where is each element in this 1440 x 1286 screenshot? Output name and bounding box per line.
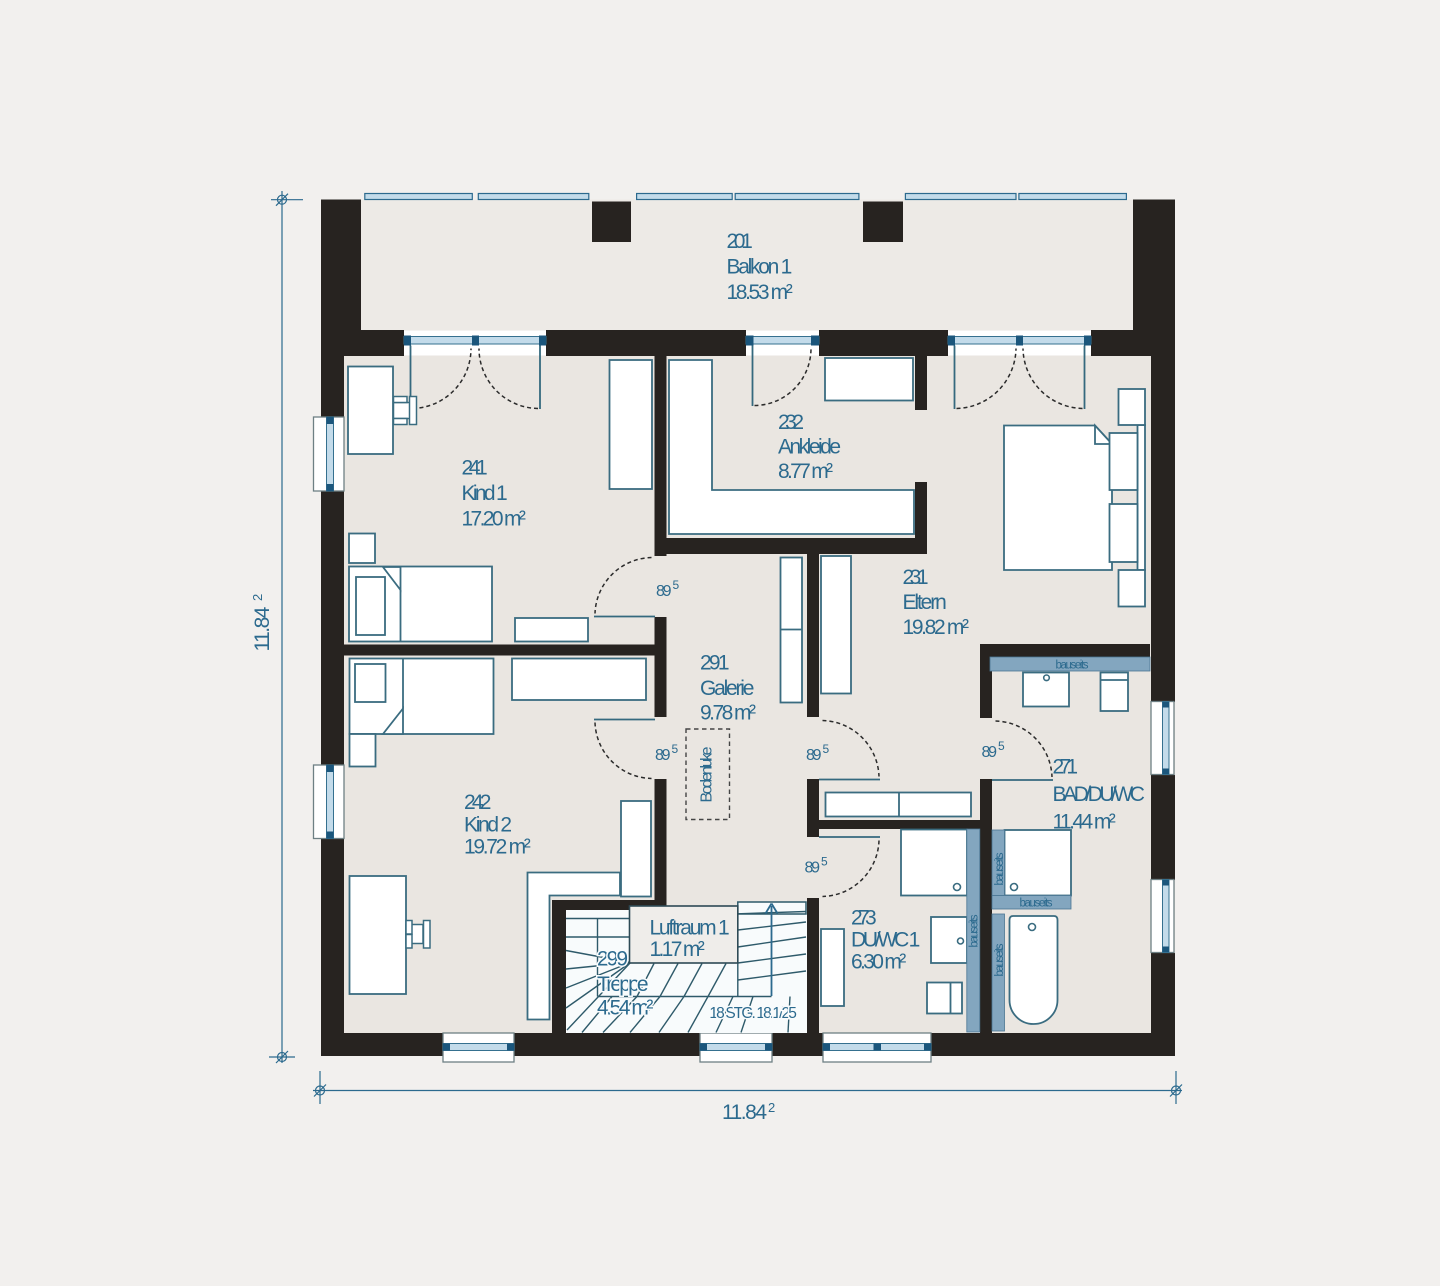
- svg-text:4.54 m²: 4.54 m²: [597, 997, 653, 1020]
- svg-text:Kind 2: Kind 2: [464, 814, 512, 837]
- svg-text:bauseits: bauseits: [994, 852, 1006, 885]
- svg-text:241: 241: [462, 457, 488, 480]
- svg-text:BAD/DU/WC: BAD/DU/WC: [1053, 783, 1145, 806]
- svg-text:5: 5: [821, 855, 828, 869]
- svg-text:Bodenluke: Bodenluke: [699, 746, 716, 802]
- svg-text:Balkon 1: Balkon 1: [727, 256, 793, 279]
- svg-text:8.77 m²: 8.77 m²: [778, 460, 833, 483]
- svg-text:Kind 1: Kind 1: [462, 482, 508, 505]
- svg-text:2: 2: [250, 594, 265, 601]
- svg-text:291: 291: [700, 652, 730, 675]
- svg-text:273: 273: [851, 907, 877, 930]
- svg-text:bauseits: bauseits: [969, 914, 981, 947]
- svg-text:bauseits: bauseits: [994, 943, 1006, 976]
- svg-text:17.20 m²: 17.20 m²: [462, 508, 526, 531]
- svg-text:5: 5: [998, 739, 1005, 753]
- svg-text:bauseits: bauseits: [1056, 660, 1089, 672]
- svg-text:19.72 m²: 19.72 m²: [464, 836, 531, 859]
- svg-text:19.82 m²: 19.82 m²: [903, 616, 970, 639]
- svg-text:231: 231: [903, 566, 929, 589]
- svg-text:11.44 m²: 11.44 m²: [1053, 811, 1116, 834]
- svg-text:89: 89: [656, 583, 672, 600]
- svg-text:9.78 m²: 9.78 m²: [700, 702, 756, 725]
- svg-text:1.17 m²: 1.17 m²: [650, 938, 705, 961]
- svg-text:232: 232: [778, 411, 804, 434]
- svg-text:89: 89: [655, 747, 671, 764]
- svg-text:89: 89: [805, 860, 821, 877]
- svg-text:Treppe: Treppe: [597, 973, 649, 996]
- svg-text:11.84: 11.84: [722, 1101, 767, 1124]
- svg-text:89: 89: [806, 747, 822, 764]
- svg-text:Ankleide: Ankleide: [778, 436, 841, 459]
- svg-text:299: 299: [597, 948, 628, 971]
- svg-text:18 STG. 18.1/25: 18 STG. 18.1/25: [709, 1005, 797, 1022]
- svg-text:2: 2: [768, 1100, 775, 1115]
- svg-text:Eltern: Eltern: [903, 591, 947, 614]
- svg-text:5: 5: [673, 578, 680, 592]
- svg-text:bauseits: bauseits: [1020, 898, 1053, 910]
- svg-text:18.53 m²: 18.53 m²: [727, 281, 793, 304]
- svg-text:201: 201: [727, 230, 753, 253]
- svg-text:89: 89: [982, 744, 998, 761]
- svg-text:5: 5: [823, 742, 830, 756]
- svg-text:DU/WC 1: DU/WC 1: [851, 929, 920, 952]
- svg-text:6.30 m²: 6.30 m²: [851, 951, 906, 974]
- svg-text:242: 242: [464, 791, 491, 814]
- svg-text:271: 271: [1053, 756, 1079, 779]
- svg-text:Galerie: Galerie: [700, 677, 754, 700]
- svg-text:11.84: 11.84: [251, 606, 274, 651]
- svg-text:Luftraum 1: Luftraum 1: [650, 917, 730, 940]
- svg-text:5: 5: [672, 742, 679, 756]
